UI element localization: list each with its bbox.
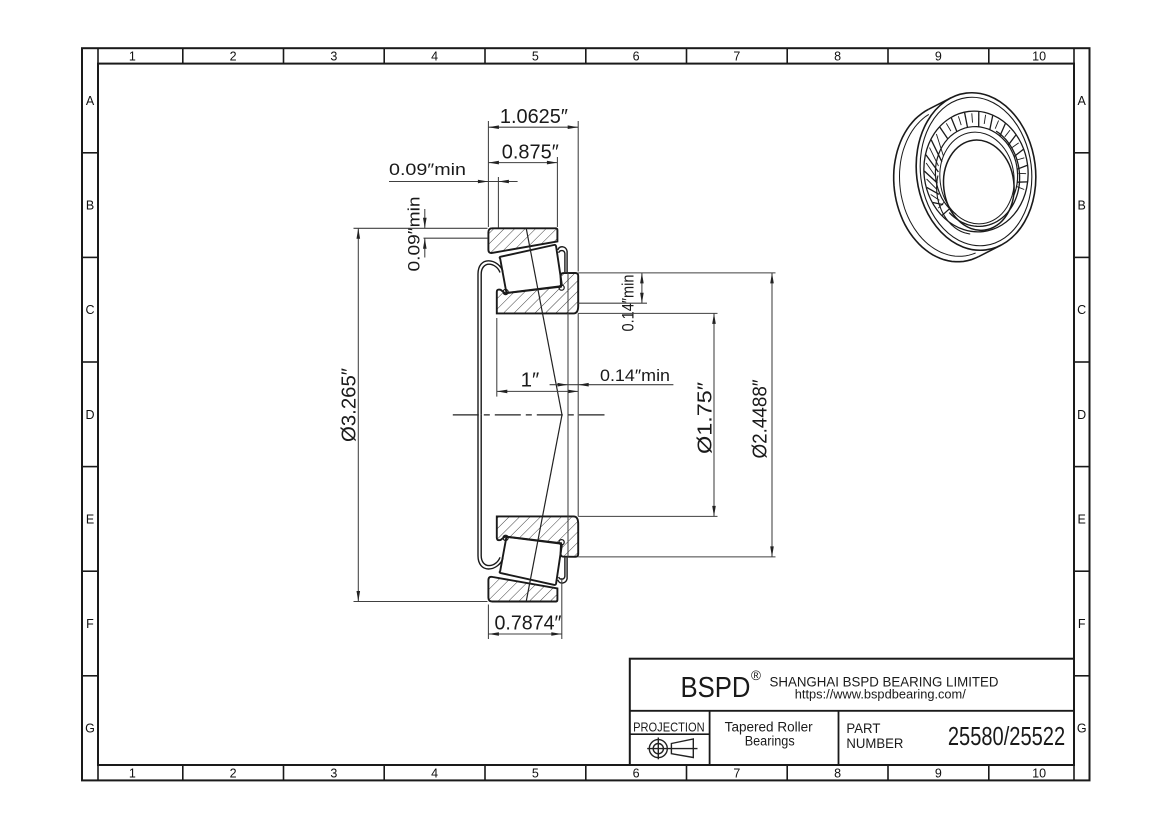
- svg-text:BSPD: BSPD: [681, 672, 751, 704]
- svg-text:1″: 1″: [521, 368, 540, 391]
- svg-text:9: 9: [935, 766, 942, 780]
- svg-text:E: E: [1078, 512, 1086, 526]
- svg-text:10: 10: [1032, 50, 1046, 64]
- svg-text:8: 8: [834, 766, 841, 780]
- svg-text:NUMBER: NUMBER: [846, 736, 903, 751]
- svg-text:https://www.bspdbearing.com/: https://www.bspdbearing.com/: [795, 687, 966, 702]
- svg-text:A: A: [1078, 94, 1087, 108]
- svg-text:PART: PART: [846, 721, 880, 736]
- svg-text:0.09″min: 0.09″min: [406, 197, 424, 272]
- svg-text:Ø2.4488″: Ø2.4488″: [749, 380, 772, 459]
- svg-text:B: B: [86, 199, 94, 213]
- svg-text:F: F: [1078, 617, 1086, 631]
- svg-text:Bearings: Bearings: [745, 734, 795, 749]
- svg-text:4: 4: [431, 766, 438, 780]
- svg-text:10: 10: [1032, 766, 1046, 780]
- svg-text:®: ®: [751, 668, 761, 683]
- svg-text:2: 2: [230, 766, 237, 780]
- svg-text:2: 2: [230, 50, 237, 64]
- svg-text:Ø3.265″: Ø3.265″: [338, 368, 361, 442]
- svg-text:1: 1: [129, 50, 136, 64]
- svg-text:F: F: [86, 617, 94, 631]
- svg-text:G: G: [1077, 722, 1087, 736]
- svg-text:1: 1: [129, 766, 136, 780]
- svg-text:0.875″: 0.875″: [502, 141, 559, 164]
- svg-text:5: 5: [532, 50, 539, 64]
- svg-text:0.7874″: 0.7874″: [495, 612, 562, 635]
- svg-text:9: 9: [935, 50, 942, 64]
- svg-text:0.14″min: 0.14″min: [620, 275, 638, 332]
- svg-text:D: D: [1077, 408, 1086, 422]
- svg-text:E: E: [86, 512, 94, 526]
- svg-text:25580/25522: 25580/25522: [948, 721, 1065, 751]
- svg-text:0.14″min: 0.14″min: [600, 367, 670, 385]
- svg-text:6: 6: [633, 766, 640, 780]
- svg-text:A: A: [86, 94, 95, 108]
- svg-text:C: C: [1077, 303, 1086, 317]
- svg-text:G: G: [85, 722, 95, 736]
- svg-text:Tapered Roller: Tapered Roller: [725, 719, 814, 734]
- svg-text:D: D: [85, 408, 94, 422]
- svg-text:3: 3: [330, 766, 337, 780]
- svg-text:8: 8: [834, 50, 841, 64]
- svg-text:B: B: [1078, 199, 1086, 213]
- svg-text:0.09″min: 0.09″min: [389, 161, 466, 179]
- svg-text:1.0625″: 1.0625″: [500, 105, 568, 128]
- svg-text:6: 6: [633, 50, 640, 64]
- svg-text:Ø1.75″: Ø1.75″: [694, 382, 717, 454]
- svg-text:7: 7: [733, 766, 740, 780]
- svg-text:4: 4: [431, 50, 438, 64]
- svg-text:7: 7: [733, 50, 740, 64]
- svg-text:3: 3: [330, 50, 337, 64]
- svg-text:C: C: [85, 303, 94, 317]
- svg-text:PROJECTION: PROJECTION: [633, 719, 705, 734]
- svg-text:5: 5: [532, 766, 539, 780]
